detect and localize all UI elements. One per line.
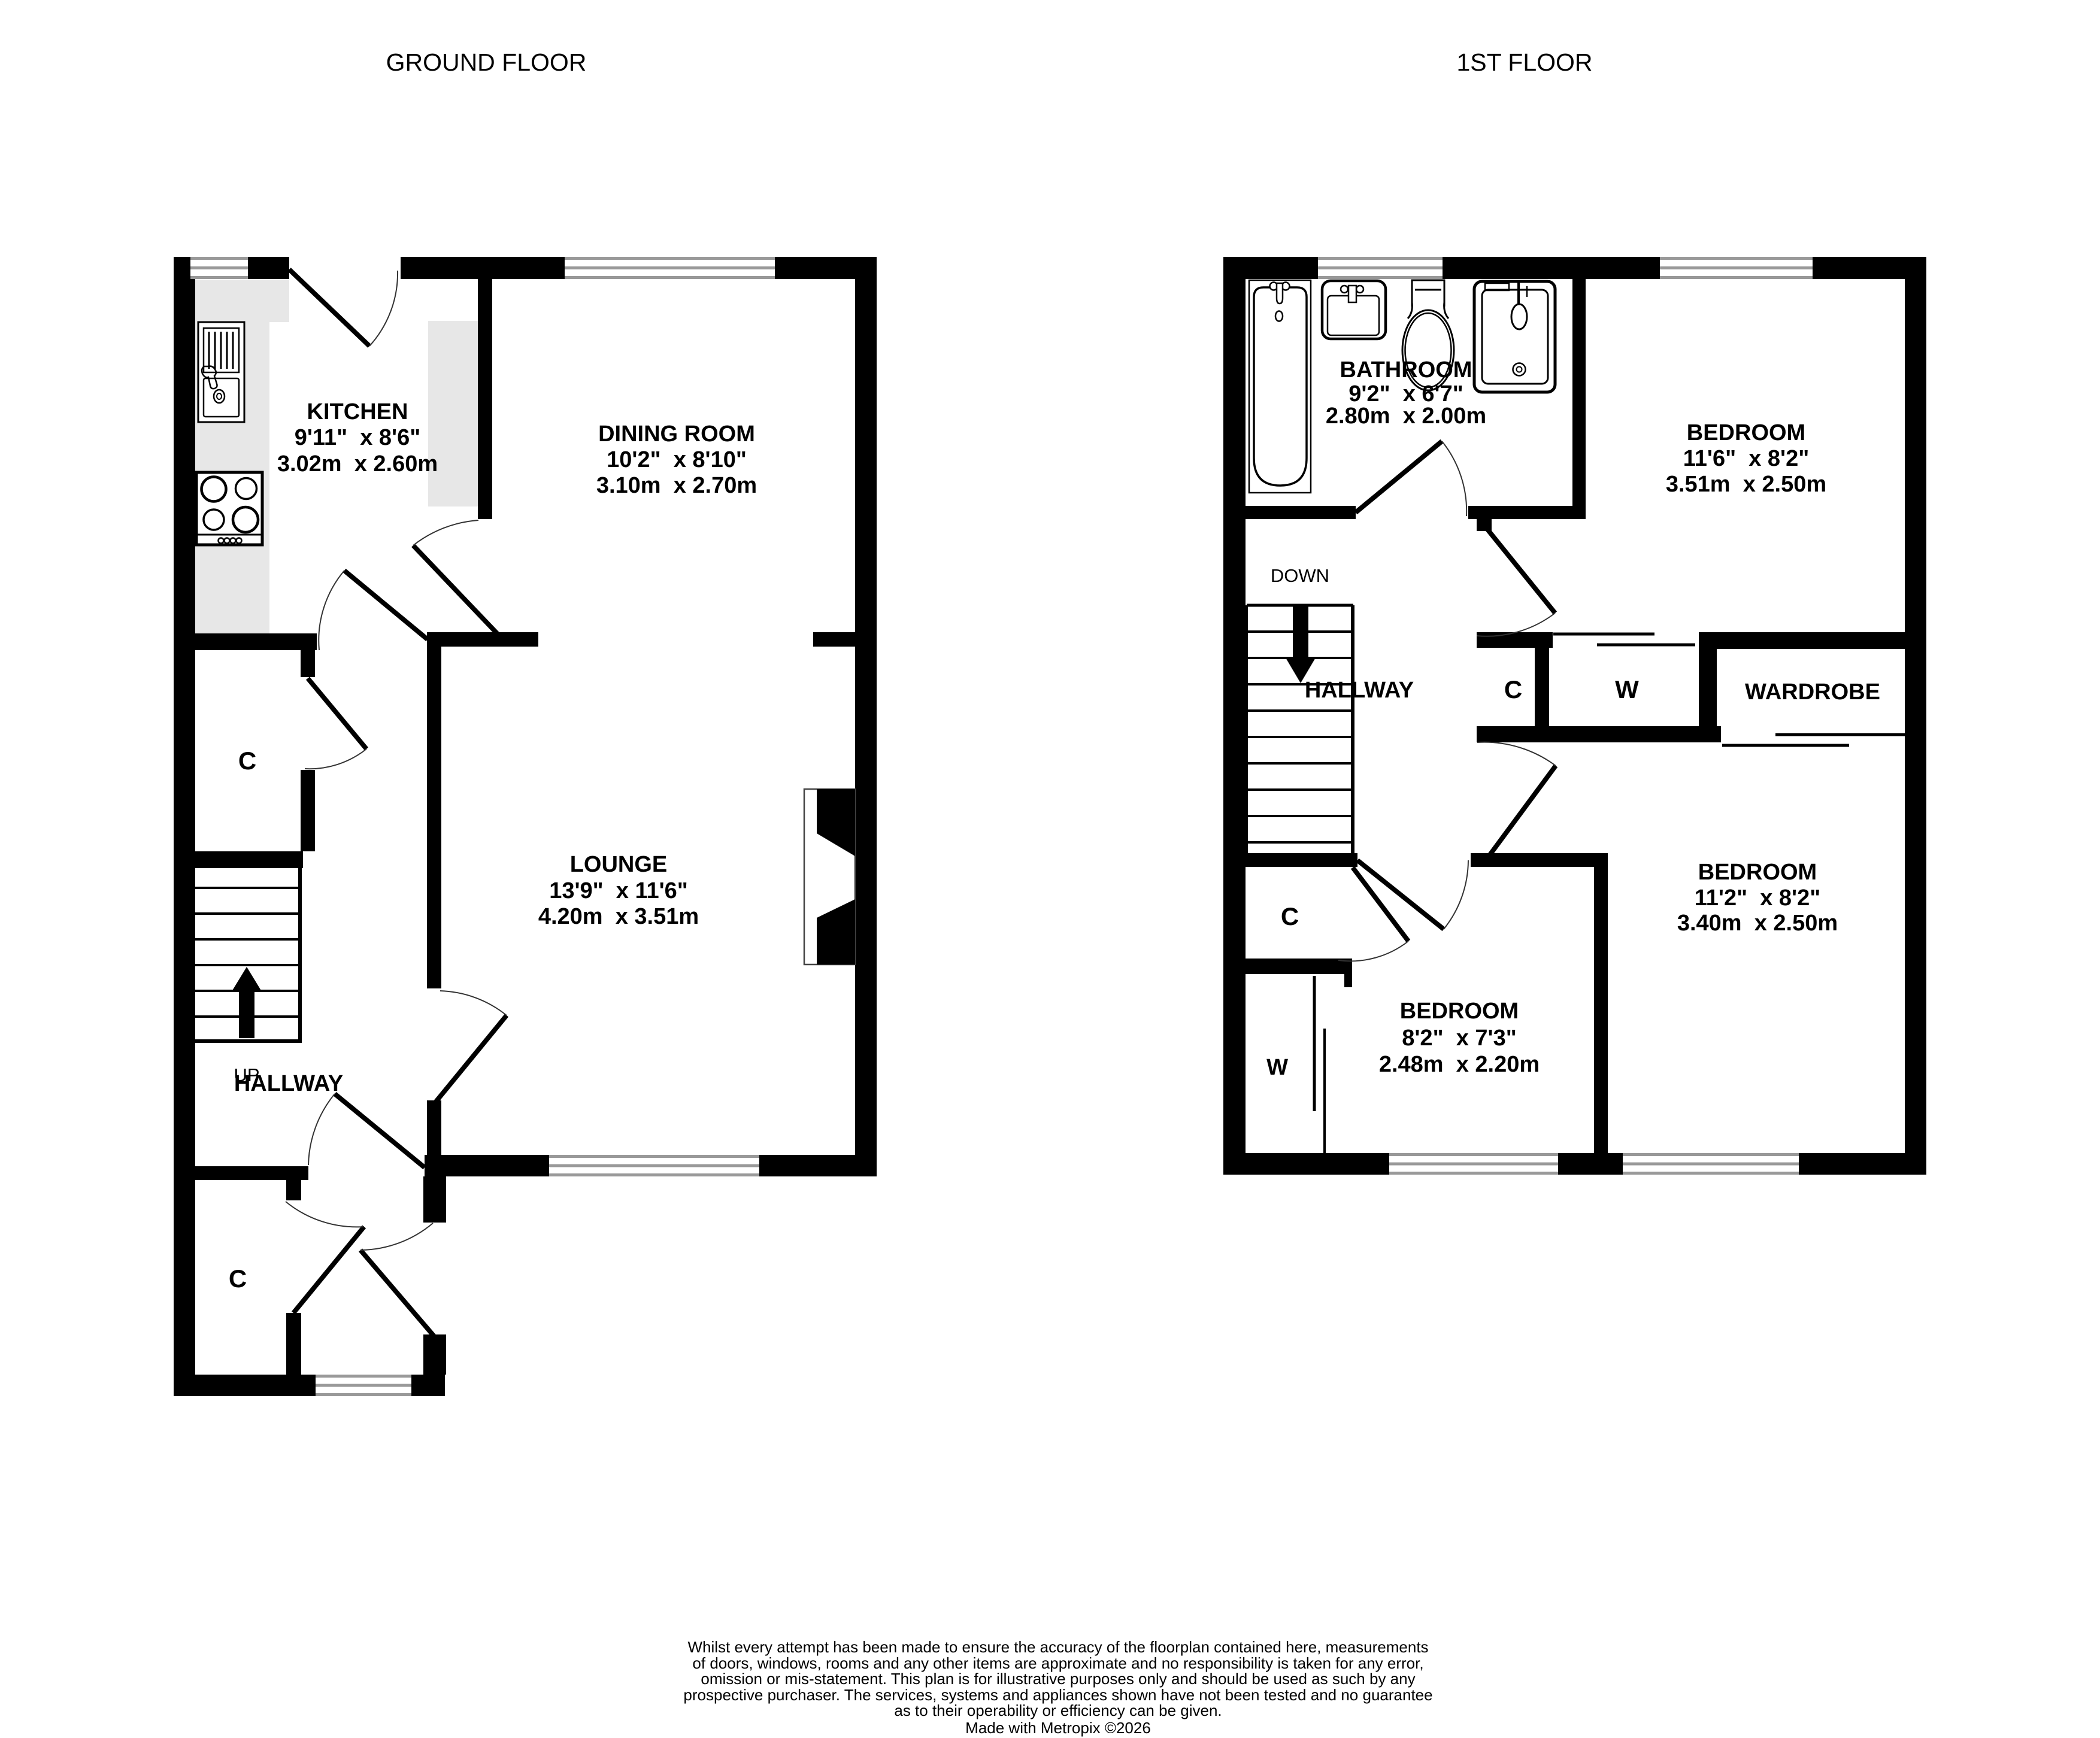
- svg-text:C: C: [1504, 675, 1522, 703]
- svg-text:as to their operability or eff: as to their operability or efficiency ca…: [894, 1701, 1222, 1719]
- svg-text:3.10m x 2.70m: 3.10m x 2.70m: [596, 473, 757, 498]
- svg-text:1ST FLOOR: 1ST FLOOR: [1456, 48, 1592, 76]
- svg-text:13'9" x 11'6": 13'9" x 11'6": [549, 878, 688, 903]
- svg-text:omission or mis-statement. Thi: omission or mis-statement. This plan is …: [701, 1670, 1415, 1688]
- svg-text:DINING ROOM: DINING ROOM: [598, 421, 755, 447]
- svg-text:10'2" x 8'10": 10'2" x 8'10": [607, 447, 747, 472]
- svg-text:BATHROOM: BATHROOM: [1340, 357, 1472, 383]
- svg-text:11'6" x 8'2": 11'6" x 8'2": [1683, 446, 1809, 471]
- svg-text:3.40m x 2.50m: 3.40m x 2.50m: [1677, 911, 1838, 936]
- svg-text:C: C: [238, 747, 256, 775]
- svg-text:C: C: [1281, 902, 1299, 930]
- svg-text:BEDROOM: BEDROOM: [1400, 999, 1519, 1024]
- svg-text:KITCHEN: KITCHEN: [307, 399, 408, 424]
- svg-text:3.51m x 2.50m: 3.51m x 2.50m: [1666, 472, 1826, 497]
- svg-text:3.02m x 2.60m: 3.02m x 2.60m: [277, 451, 438, 477]
- svg-text:W: W: [1615, 675, 1639, 703]
- svg-text:8'2" x 7'3": 8'2" x 7'3": [1402, 1026, 1516, 1051]
- svg-text:HALLWAY: HALLWAY: [1305, 678, 1414, 703]
- svg-text:2.80m x 2.00m: 2.80m x 2.00m: [1326, 404, 1486, 429]
- svg-text:BEDROOM: BEDROOM: [1698, 860, 1817, 885]
- svg-text:BEDROOM: BEDROOM: [1687, 420, 1805, 445]
- svg-text:DOWN: DOWN: [1271, 565, 1329, 586]
- svg-text:C: C: [229, 1264, 247, 1293]
- svg-text:9'11" x 8'6": 9'11" x 8'6": [295, 425, 420, 450]
- svg-text:11'2" x 8'2": 11'2" x 8'2": [1695, 885, 1820, 911]
- svg-text:9'2" x 6'7": 9'2" x 6'7": [1349, 381, 1463, 407]
- svg-text:LOUNGE: LOUNGE: [570, 852, 668, 877]
- svg-text:Made with Metropix ©2026: Made with Metropix ©2026: [965, 1719, 1151, 1737]
- svg-text:Whilst every attempt has been: Whilst every attempt has been made to en…: [687, 1638, 1428, 1656]
- svg-text:GROUND FLOOR: GROUND FLOOR: [386, 48, 587, 76]
- svg-text:HALLWAY: HALLWAY: [234, 1071, 343, 1096]
- svg-text:2.48m x 2.20m: 2.48m x 2.20m: [1379, 1052, 1540, 1077]
- svg-text:4.20m x 3.51m: 4.20m x 3.51m: [538, 904, 699, 929]
- svg-text:W: W: [1266, 1055, 1288, 1080]
- svg-text:WARDROBE: WARDROBE: [1745, 680, 1880, 705]
